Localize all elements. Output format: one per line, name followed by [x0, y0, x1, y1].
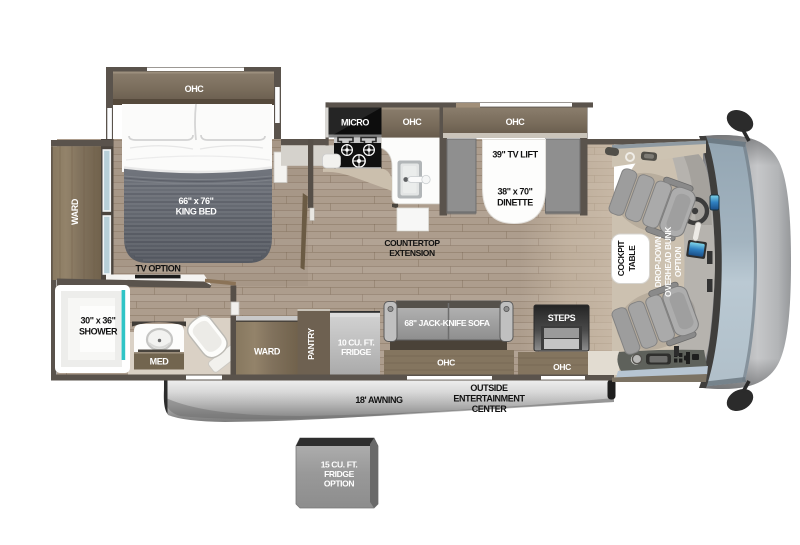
svg-text:30" x 36": 30" x 36"	[81, 316, 116, 326]
svg-text:PANTRY: PANTRY	[306, 327, 316, 359]
svg-text:66" x 76": 66" x 76"	[179, 196, 214, 206]
svg-text:DROP-DOWN: DROP-DOWN	[653, 236, 663, 287]
svg-text:38" x 70": 38" x 70"	[498, 187, 533, 197]
svg-text:OHC: OHC	[185, 84, 205, 94]
svg-text:OHC: OHC	[403, 117, 423, 127]
svg-text:OPTION: OPTION	[324, 479, 354, 489]
svg-text:WARD: WARD	[254, 347, 281, 357]
svg-text:OPTION: OPTION	[673, 247, 683, 277]
svg-text:FRIDGE: FRIDGE	[341, 347, 371, 357]
svg-text:KING BED: KING BED	[176, 207, 218, 217]
svg-text:DINETTE: DINETTE	[497, 198, 533, 208]
svg-text:OUTSIDE: OUTSIDE	[470, 383, 508, 393]
svg-text:15 CU. FT.: 15 CU. FT.	[321, 460, 358, 470]
svg-text:39" TV LIFT: 39" TV LIFT	[492, 150, 538, 160]
svg-text:FRIDGE: FRIDGE	[324, 469, 354, 479]
svg-text:OHC: OHC	[437, 358, 455, 368]
svg-text:MED: MED	[150, 357, 170, 367]
svg-text:10 CU. FT.: 10 CU. FT.	[338, 338, 375, 348]
svg-text:TV OPTION: TV OPTION	[136, 264, 181, 274]
svg-text:OVERHEAD BUNK: OVERHEAD BUNK	[663, 226, 673, 297]
svg-text:ENTERTAINMENT: ENTERTAINMENT	[453, 394, 525, 404]
svg-text:COCKPIT: COCKPIT	[616, 240, 626, 277]
svg-text:STEPS: STEPS	[548, 313, 576, 323]
svg-text:OHC: OHC	[506, 117, 526, 127]
svg-text:WARD: WARD	[70, 198, 80, 225]
svg-text:COUNTERTOP: COUNTERTOP	[384, 238, 440, 248]
svg-text:TABLE: TABLE	[627, 245, 637, 271]
svg-text:MICRO: MICRO	[341, 118, 369, 128]
svg-text:18' AWNING: 18' AWNING	[355, 395, 403, 405]
svg-text:CENTER: CENTER	[472, 404, 508, 414]
svg-text:SHOWER: SHOWER	[79, 327, 118, 337]
svg-text:EXTENSION: EXTENSION	[389, 248, 435, 258]
svg-text:OHC: OHC	[553, 362, 571, 372]
svg-text:68" JACK-KNIFE SOFA: 68" JACK-KNIFE SOFA	[404, 318, 489, 328]
